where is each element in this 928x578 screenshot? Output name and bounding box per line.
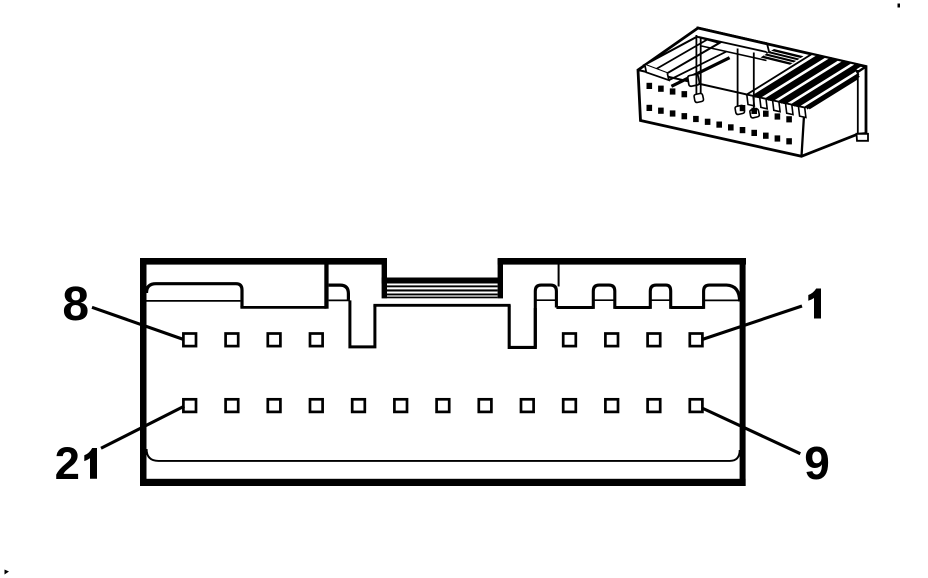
svg-text:8: 8 xyxy=(62,278,89,331)
svg-text:2: 2 xyxy=(55,438,80,489)
svg-text:9: 9 xyxy=(804,437,830,489)
